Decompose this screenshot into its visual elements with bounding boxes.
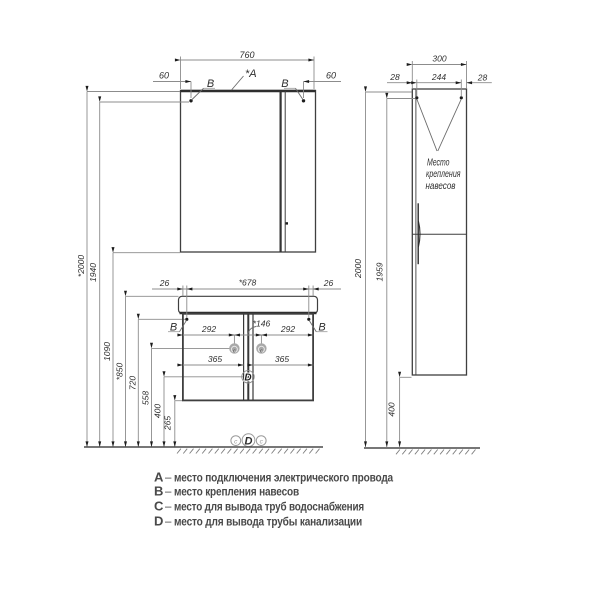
- svg-text:C: C: [154, 499, 164, 514]
- svg-text:B: B: [154, 484, 163, 499]
- svg-text:26: 26: [159, 278, 170, 288]
- svg-text:244: 244: [431, 72, 446, 82]
- svg-text:265: 265: [163, 416, 173, 431]
- svg-text:1940: 1940: [88, 263, 98, 282]
- svg-text:1090: 1090: [102, 342, 112, 361]
- svg-text:*678: *678: [239, 278, 257, 288]
- svg-text:365: 365: [275, 354, 289, 364]
- svg-text:400: 400: [152, 404, 162, 418]
- svg-text:c: c: [260, 349, 263, 355]
- svg-text:c: c: [233, 349, 236, 355]
- svg-text:2000: 2000: [353, 259, 363, 279]
- svg-text:26: 26: [323, 278, 334, 288]
- svg-text:навесов: навесов: [426, 180, 456, 192]
- svg-text:300: 300: [432, 54, 446, 64]
- svg-text:–: –: [165, 486, 172, 498]
- svg-text:760: 760: [239, 50, 254, 60]
- svg-text:400: 400: [387, 402, 397, 416]
- svg-text:–: –: [165, 516, 172, 528]
- svg-text:28: 28: [477, 73, 488, 83]
- svg-text:60: 60: [326, 71, 336, 81]
- svg-text:*146: *146: [253, 319, 271, 329]
- svg-text:A: A: [154, 470, 164, 485]
- svg-text:место для вывода трубы канализ: место для вывода трубы канализации: [174, 515, 362, 529]
- svg-text:365: 365: [208, 354, 222, 364]
- svg-text:Место: Место: [427, 156, 450, 168]
- svg-text:место подключения электрическо: место подключения электрического провода: [174, 471, 394, 485]
- svg-text:крепления: крепления: [426, 168, 461, 180]
- svg-text:558: 558: [141, 391, 151, 405]
- svg-text:D: D: [154, 514, 163, 529]
- svg-text:место для вывода труб водоснаб: место для вывода труб водоснабжения: [174, 500, 364, 514]
- svg-text:–: –: [165, 501, 172, 513]
- svg-text:*A: *A: [245, 68, 257, 80]
- svg-text:–: –: [165, 472, 172, 484]
- svg-text:D: D: [245, 435, 253, 447]
- svg-text:720: 720: [127, 376, 137, 390]
- svg-text:1959: 1959: [375, 262, 385, 281]
- svg-text:место крепления навесов: место крепления навесов: [174, 485, 299, 499]
- svg-text:60: 60: [159, 71, 169, 81]
- svg-text:292: 292: [280, 324, 295, 334]
- svg-text:D: D: [244, 373, 251, 384]
- svg-text:*2000: *2000: [76, 255, 86, 277]
- svg-text:28: 28: [389, 72, 400, 82]
- svg-text:*850: *850: [115, 362, 125, 380]
- svg-text:292: 292: [201, 324, 216, 334]
